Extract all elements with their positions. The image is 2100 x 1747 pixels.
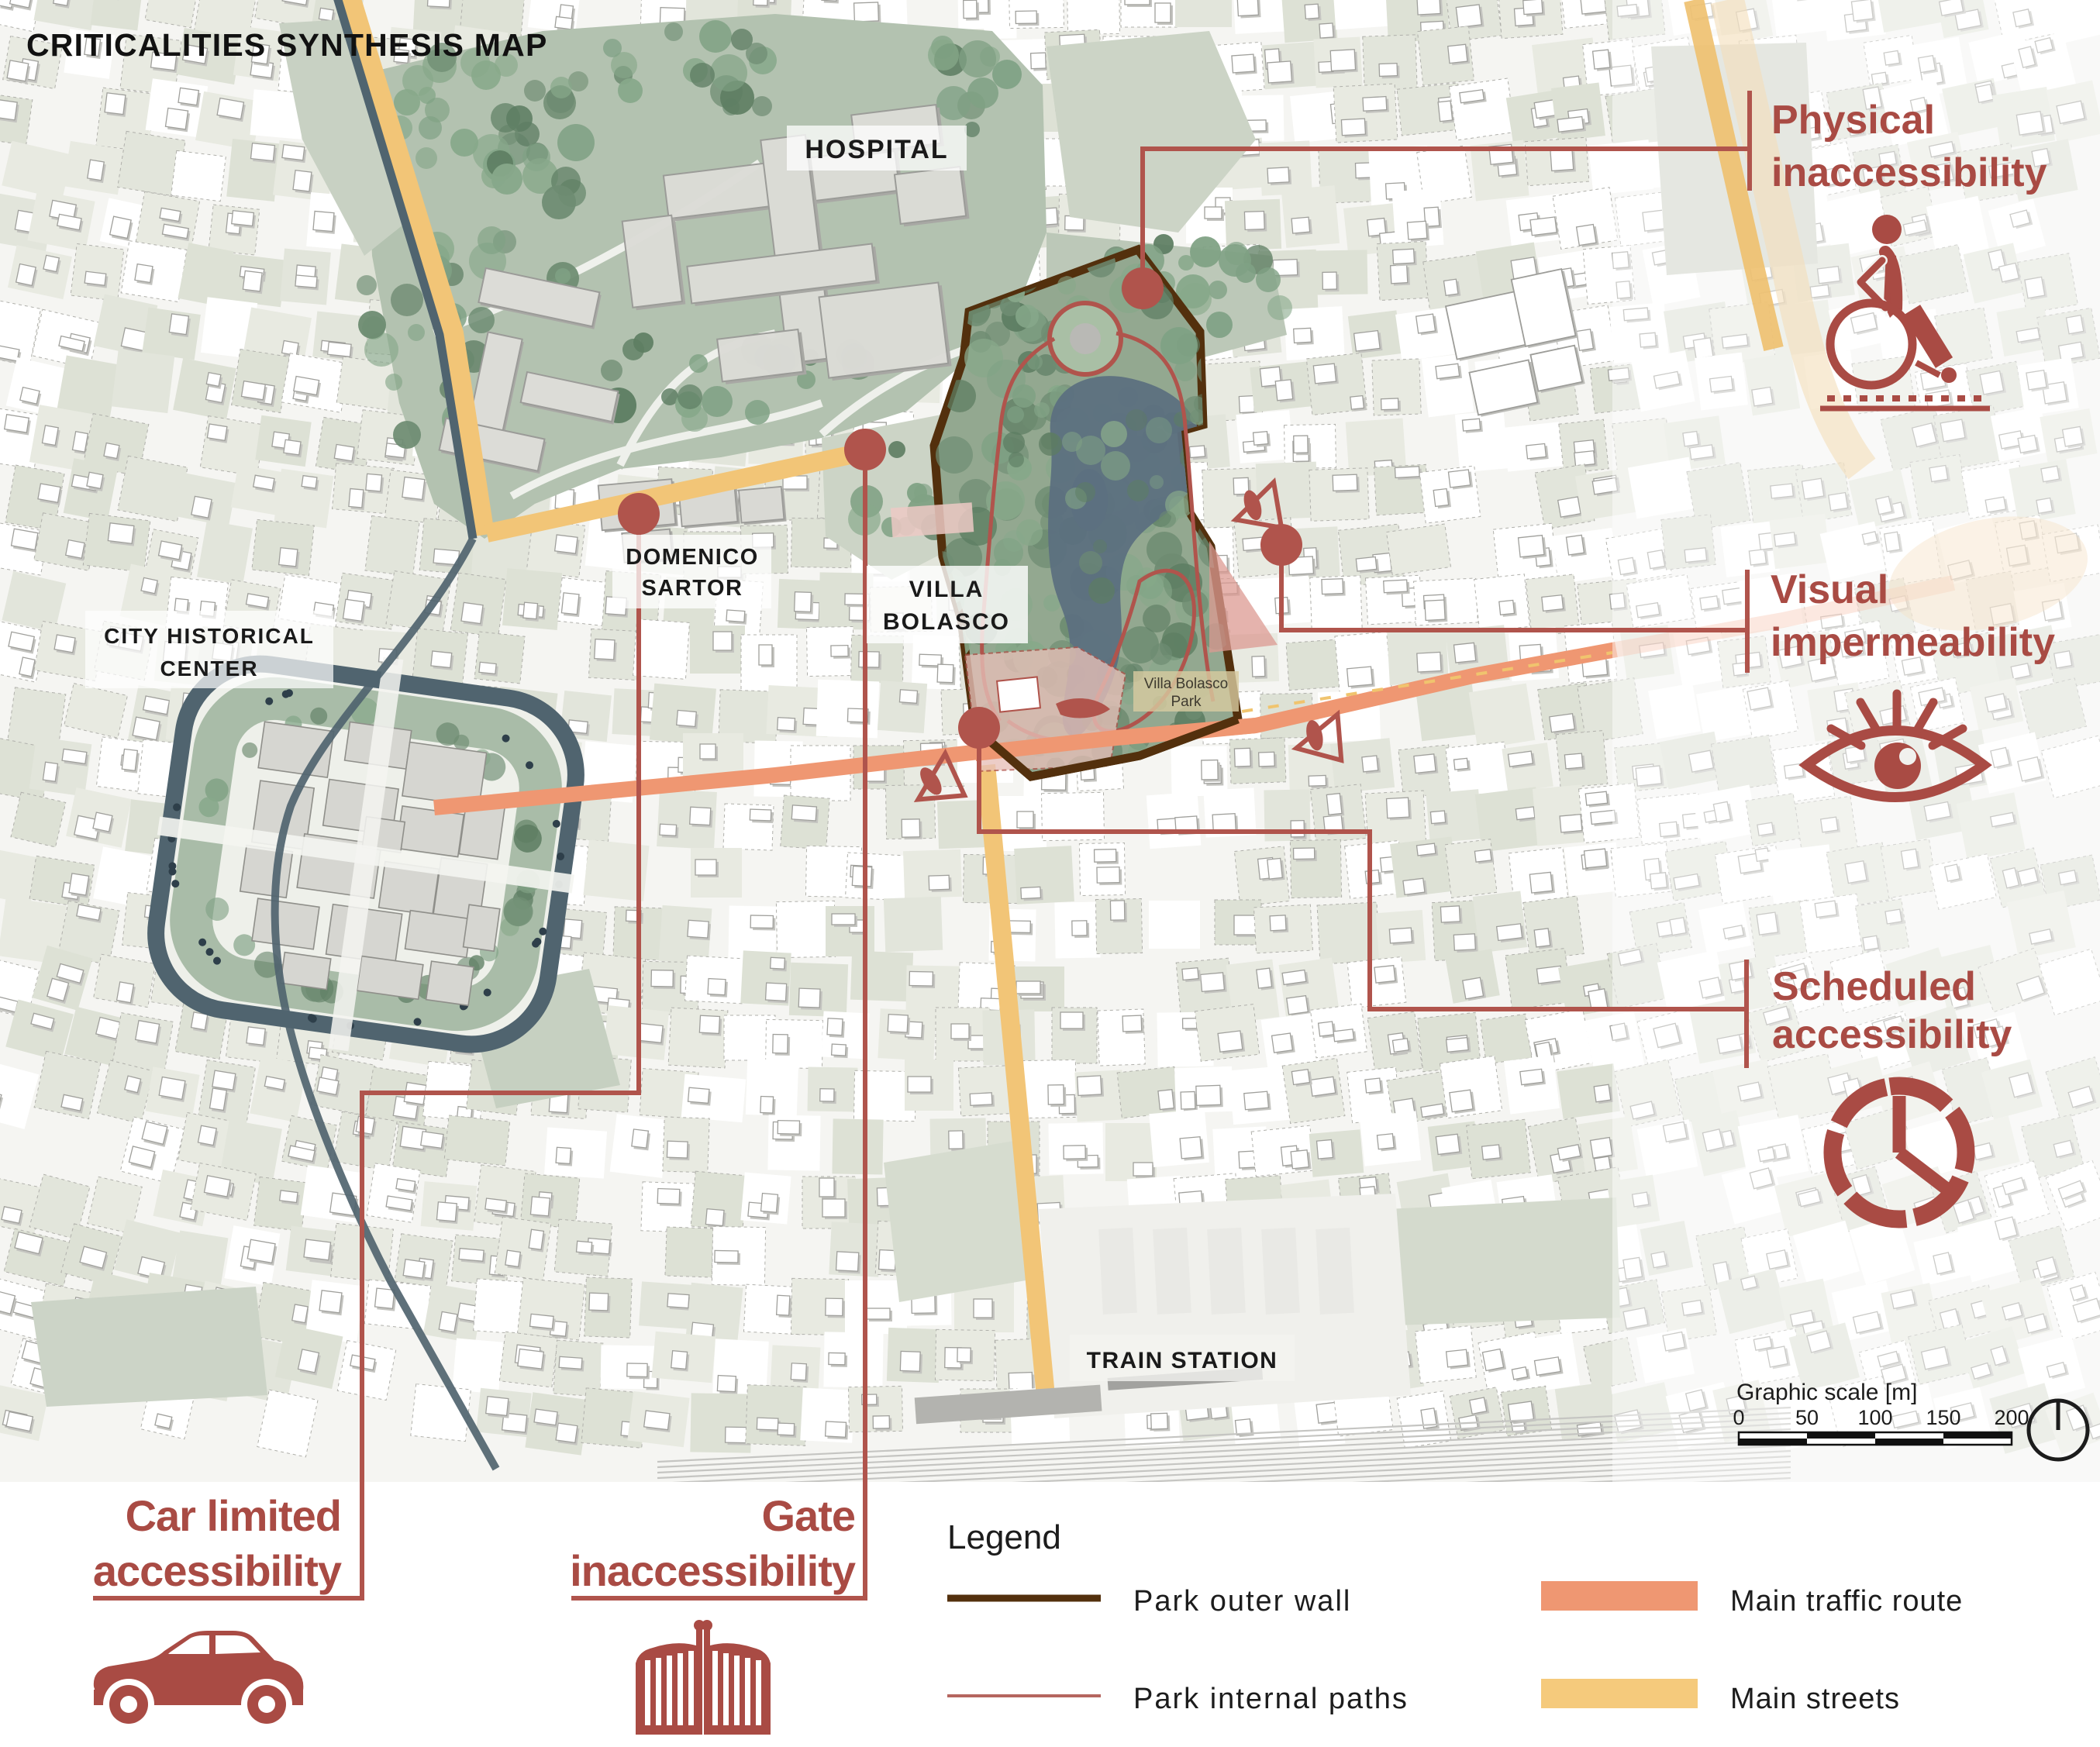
svg-text:accessibility: accessibility [93, 1546, 342, 1595]
svg-text:Gate: Gate [762, 1491, 856, 1540]
svg-text:Park internal paths: Park internal paths [1133, 1683, 1409, 1715]
svg-text:Park: Park [1171, 694, 1202, 710]
svg-text:50: 50 [1795, 1406, 1819, 1429]
svg-text:DOMENICO: DOMENICO [626, 545, 759, 570]
svg-text:Physical: Physical [1771, 98, 1935, 143]
svg-text:Park outer wall: Park outer wall [1133, 1585, 1351, 1618]
svg-text:Scheduled: Scheduled [1772, 964, 1976, 1009]
svg-text:CRITICALITIES SYNTHESIS MAP: CRITICALITIES SYNTHESIS MAP [26, 27, 548, 63]
svg-text:VILLA: VILLA [909, 577, 984, 602]
svg-text:0: 0 [1733, 1406, 1744, 1429]
svg-text:BOLASCO: BOLASCO [883, 609, 1010, 635]
svg-text:inaccessibility: inaccessibility [1771, 150, 2047, 195]
svg-text:TRAIN STATION: TRAIN STATION [1087, 1348, 1278, 1373]
svg-text:inaccessibility: inaccessibility [570, 1546, 856, 1595]
svg-text:CENTER: CENTER [160, 656, 258, 681]
svg-text:Visual: Visual [1771, 567, 1888, 612]
svg-text:200: 200 [1994, 1406, 2029, 1429]
svg-text:Legend: Legend [947, 1518, 1061, 1556]
svg-text:Graphic scale [m]: Graphic scale [m] [1736, 1380, 1917, 1405]
svg-text:Main traffic route: Main traffic route [1730, 1585, 1963, 1618]
svg-text:accessibility: accessibility [1772, 1012, 2012, 1057]
svg-text:impermeability: impermeability [1771, 620, 2055, 665]
svg-text:100: 100 [1857, 1406, 1892, 1429]
svg-text:HOSPITAL: HOSPITAL [805, 135, 948, 164]
svg-text:Car limited: Car limited [126, 1491, 341, 1540]
svg-text:Main streets: Main streets [1730, 1683, 1900, 1715]
svg-text:SARTOR: SARTOR [642, 576, 743, 601]
svg-text:CITY HISTORICAL: CITY HISTORICAL [104, 624, 315, 648]
svg-text:150: 150 [1926, 1406, 1960, 1429]
svg-text:Villa Bolasco: Villa Bolasco [1144, 676, 1228, 692]
